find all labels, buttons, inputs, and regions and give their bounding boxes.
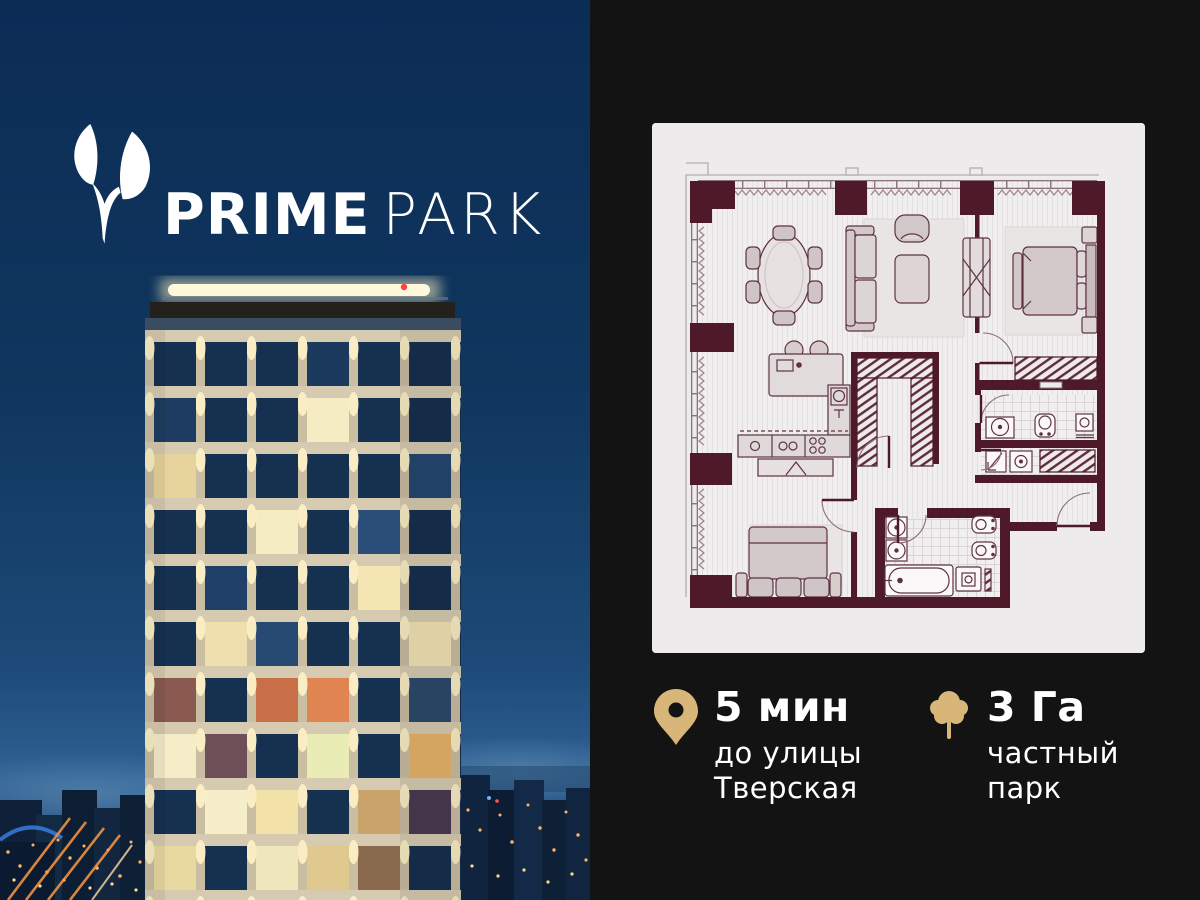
brand-logo: PRIMEPARK bbox=[58, 116, 545, 248]
info-panel: 5 мин до улицы Тверская 3 Га частный пар… bbox=[590, 0, 1200, 900]
tree-icon bbox=[927, 689, 971, 743]
brand-name-prime: PRIME bbox=[163, 182, 371, 248]
floor-plan-drawing bbox=[652, 123, 1145, 653]
stat-distance: 5 мин до улицы Тверская bbox=[654, 686, 862, 807]
aviation-beacon-light bbox=[401, 284, 407, 290]
brand-name: PRIMEPARK bbox=[163, 187, 545, 248]
location-pin-icon bbox=[654, 689, 698, 746]
stat-park-value: 3 Га bbox=[987, 686, 1119, 729]
stat-distance-value: 5 мин bbox=[714, 686, 862, 729]
sprout-leaves-icon bbox=[58, 116, 153, 248]
stat-park: 3 Га частный парк bbox=[927, 686, 1119, 807]
floor-plan-card bbox=[652, 123, 1145, 653]
stat-park-line1: частный bbox=[987, 736, 1119, 771]
stat-distance-line2: Тверская bbox=[714, 771, 862, 806]
stat-distance-line1: до улицы bbox=[714, 736, 862, 771]
stat-park-line2: парк bbox=[987, 771, 1119, 806]
building-photo: PRIMEPARK bbox=[0, 0, 590, 900]
tv-console bbox=[963, 238, 990, 317]
brand-name-park: PARK bbox=[383, 182, 546, 248]
bathroom2-fixtures bbox=[986, 414, 1094, 438]
promo-slide: PRIMEPARK bbox=[0, 0, 1200, 900]
tower bbox=[145, 278, 461, 900]
